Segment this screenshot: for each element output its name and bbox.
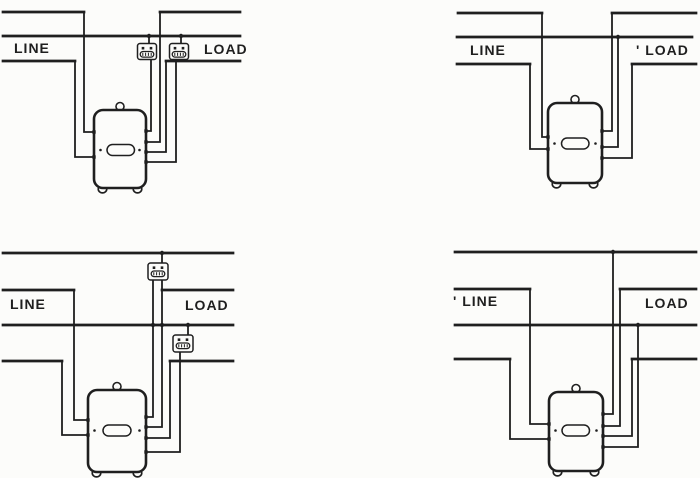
wire [146, 12, 160, 142]
panel-top-right [457, 13, 696, 188]
wiring-diagram [0, 0, 700, 478]
watt-hour-meter [86, 383, 147, 477]
meter-terminal [546, 147, 549, 150]
fuse-terminal-dot [142, 47, 145, 50]
meter-terminal [144, 160, 147, 163]
wire [602, 64, 632, 158]
wire [146, 281, 153, 417]
top-right-line-label: LINE [470, 42, 506, 58]
junction-dot [186, 323, 190, 327]
meter-screw [138, 429, 141, 432]
fuse-box [173, 335, 193, 352]
junction-dot [160, 251, 164, 255]
wire [74, 290, 88, 420]
wire [62, 361, 88, 435]
bottom-left-load-label: LOAD [185, 297, 229, 313]
meter-terminal [144, 436, 147, 439]
meter-case [548, 103, 602, 183]
wire [602, 13, 612, 131]
fuse-box [148, 263, 168, 280]
wire [603, 359, 632, 436]
meter-terminal [601, 412, 604, 415]
bottom-right-line-label: ' LINE [453, 293, 498, 309]
meter-screw [553, 142, 556, 145]
meter-terminal [144, 150, 147, 153]
junction-dot [147, 34, 151, 38]
meter-terminal [92, 155, 95, 158]
meter-terminal [86, 418, 89, 421]
meter-screw [93, 429, 96, 432]
meter-terminal [600, 129, 603, 132]
panel-bottom-left [3, 251, 233, 477]
junction-dot [636, 323, 640, 327]
fuse-terminal-dot [174, 47, 177, 50]
watt-hour-meter [547, 385, 604, 476]
junction-dot [616, 35, 620, 39]
meter-terminal [601, 434, 604, 437]
fuse-box [138, 44, 157, 60]
bottom-left-line-label: LINE [10, 296, 46, 312]
meter-case [549, 392, 603, 471]
meter-case [94, 110, 146, 188]
top-left-load-label: LOAD [204, 41, 248, 57]
fuse-terminal-dot [186, 338, 189, 341]
meter-screw [554, 429, 557, 432]
meter-terminal [144, 425, 147, 428]
meter-case [88, 390, 146, 472]
wire [530, 289, 549, 424]
watt-hour-meter [546, 96, 603, 188]
junction-dot [160, 323, 164, 327]
fuse-terminal-dot [178, 338, 181, 341]
meter-terminal [144, 415, 147, 418]
meter-terminal [600, 145, 603, 148]
wire [603, 252, 613, 414]
top-left-line-label: LINE [14, 40, 50, 56]
wire [603, 289, 620, 426]
meter-screw [595, 429, 598, 432]
meter-terminal [92, 130, 95, 133]
meter-terminal [600, 156, 603, 159]
meter-terminal [547, 422, 550, 425]
meter-terminal [601, 445, 604, 448]
bottom-right-load-label: LOAD [645, 295, 689, 311]
fuse-terminal-dot [150, 47, 153, 50]
fuse-terminal-dot [153, 266, 156, 269]
wire [84, 12, 94, 132]
fuse-terminal-dot [161, 266, 164, 269]
top-right-load-label: ' LOAD [636, 42, 689, 58]
wire [146, 61, 166, 152]
meter-terminal [144, 140, 147, 143]
wire [146, 281, 162, 427]
panel-bottom-right [455, 250, 696, 476]
meter-screw [594, 142, 597, 145]
meter-terminal [86, 433, 89, 436]
fuse-box [170, 44, 189, 60]
meter-terminal [546, 135, 549, 138]
junction-dot [179, 34, 183, 38]
figure-canvas: LINE LOAD LINE ' LOAD LINE LOAD ' LINE L… [0, 0, 700, 478]
meter-terminal [144, 450, 147, 453]
meter-terminal [547, 437, 550, 440]
watt-hour-meter [92, 103, 147, 193]
meter-terminal [601, 424, 604, 427]
junction-dot [151, 323, 155, 327]
fuse-terminal-dot [182, 47, 185, 50]
meter-terminal [144, 129, 147, 132]
junction-dot [611, 250, 615, 254]
meter-screw [138, 149, 141, 152]
meter-screw [99, 149, 102, 152]
